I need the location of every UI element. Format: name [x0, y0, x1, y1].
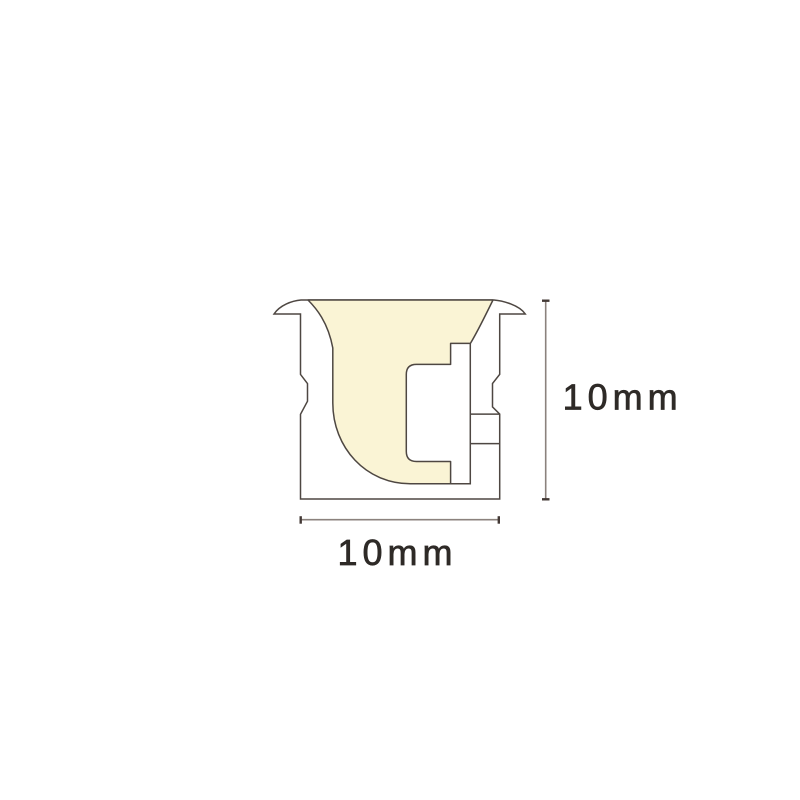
svg-text:10mm: 10mm: [563, 377, 683, 418]
svg-text:10mm: 10mm: [337, 532, 457, 573]
